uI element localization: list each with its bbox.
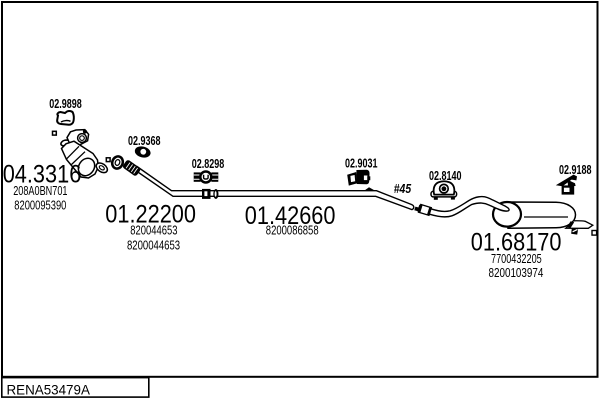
svg-text:208A0BN701: 208A0BN701 xyxy=(13,185,67,199)
svg-text:#45: #45 xyxy=(394,183,412,196)
svg-text:02.9031: 02.9031 xyxy=(345,157,377,171)
svg-text:02.8140: 02.8140 xyxy=(429,170,461,184)
svg-text:RENA53479A: RENA53479A xyxy=(7,383,90,398)
svg-text:8200103974: 8200103974 xyxy=(489,267,544,280)
svg-text:820044653: 820044653 xyxy=(130,224,177,238)
svg-text:02.9188: 02.9188 xyxy=(559,164,591,178)
svg-text:02.8298: 02.8298 xyxy=(192,158,224,172)
svg-text:02.9898: 02.9898 xyxy=(49,98,81,112)
svg-text:01.68170: 01.68170 xyxy=(471,228,562,256)
svg-text:8200044653: 8200044653 xyxy=(127,239,180,252)
svg-text:8200095390: 8200095390 xyxy=(14,199,66,213)
svg-text:7700432205: 7700432205 xyxy=(491,253,542,267)
svg-text:8200086858: 8200086858 xyxy=(266,224,319,238)
svg-text:02.9368: 02.9368 xyxy=(128,135,160,149)
